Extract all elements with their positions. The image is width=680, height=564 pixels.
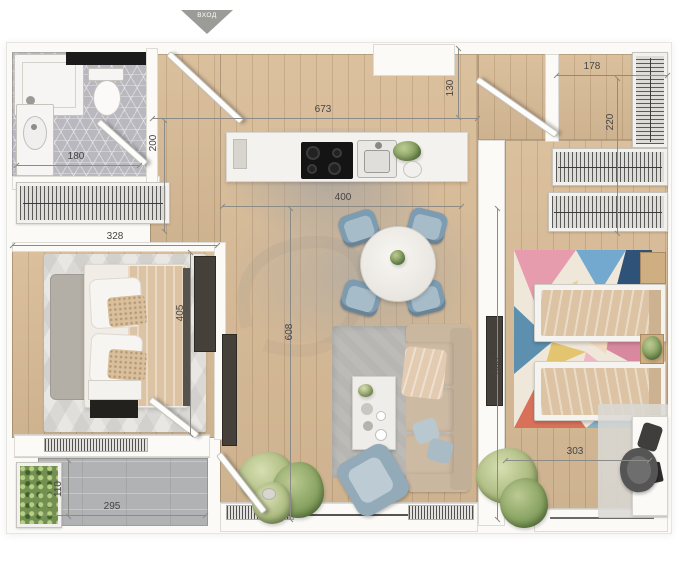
washbasin-sink [23, 116, 47, 150]
bathroom-mirror [66, 52, 146, 65]
kids-closet-1-hatch [556, 152, 664, 182]
sofa [406, 324, 474, 494]
dim-label-328: 328 [96, 231, 134, 243]
kids-floor-plant [500, 478, 548, 528]
armchair-seat [346, 455, 396, 506]
kids-bed-1-pillow [649, 290, 661, 336]
cup [376, 411, 386, 421]
dim-label-110: 110 [53, 474, 65, 504]
duct-niche [373, 44, 455, 76]
cup [363, 421, 373, 431]
dim-label-130: 130 [445, 73, 457, 103]
sink-faucet [375, 142, 382, 149]
hanger-rail [650, 58, 651, 143]
nightstand-tray [88, 380, 142, 400]
living-tv-panel [222, 334, 237, 446]
dim-label-295: 295 [94, 501, 130, 513]
sink-unit [357, 140, 397, 178]
kids-nightstand-plant [642, 336, 662, 360]
floor-plan: ВХОД [0, 0, 680, 564]
burner [306, 146, 320, 160]
kids-closet-1 [552, 148, 668, 186]
dim-line-180 [16, 165, 140, 166]
dim-line-178 [556, 75, 668, 76]
dim-label-608-left: 608 [284, 317, 296, 347]
dim-line-405 [190, 252, 191, 435]
bed-cushion [107, 349, 147, 382]
dim-line-130 [458, 48, 459, 118]
dim-label-220: 220 [605, 106, 617, 138]
burner [328, 162, 341, 175]
closet-tall [632, 52, 668, 148]
hall-wardrobe-hatch [20, 186, 166, 220]
dim-label-673: 673 [303, 104, 343, 116]
dim-label-405: 405 [175, 298, 187, 328]
cup [361, 403, 373, 415]
sink-bowl [364, 150, 390, 173]
bed-cushion [107, 294, 147, 327]
kids-closet-2-hatch [552, 196, 664, 228]
cup [375, 429, 387, 441]
dim-label-180: 180 [60, 151, 92, 163]
dim-label-608-right: 608 [491, 351, 503, 381]
bedroom-wardrobe [194, 256, 216, 352]
coffee-table-plant [358, 384, 373, 397]
dim-label-200: 200 [148, 128, 160, 158]
hall-wardrobe [16, 182, 170, 224]
dim-label-303: 303 [556, 446, 594, 458]
bed-headboard [50, 274, 88, 400]
dim-label-178: 178 [574, 61, 610, 73]
kitchen-bowl [403, 161, 422, 178]
cutting-board [233, 139, 247, 169]
dim-line-110 [68, 460, 69, 517]
dim-line-608-left [290, 208, 291, 520]
kitchen-plant [393, 141, 421, 161]
kids-bed-1-duvet [541, 290, 653, 336]
hanger-rail [558, 167, 662, 168]
dim-line-303 [505, 460, 650, 461]
burner [307, 164, 317, 174]
dim-line-400 [222, 206, 462, 207]
washbasin-faucet [31, 124, 37, 130]
dim-line-673 [152, 118, 478, 119]
table-centerpiece [390, 250, 405, 265]
dim-line-220 [617, 78, 618, 234]
dim-line-328 [12, 245, 218, 246]
closet-tall-hatch [636, 56, 664, 144]
kids-nightstand-top [640, 252, 666, 284]
plant-pot [262, 488, 276, 500]
dim-line-295 [44, 515, 206, 516]
hanger-rail [554, 212, 662, 213]
burner [332, 148, 342, 158]
bedroom-radiator [44, 438, 148, 452]
nightstand [90, 400, 138, 418]
cooktop [301, 142, 353, 179]
kitchen-counter [226, 132, 468, 182]
entrance-marker-label: ВХОД [181, 12, 233, 19]
living-radiator-right [408, 505, 474, 520]
sofa-throw [401, 346, 448, 400]
kids-closet-2 [548, 192, 668, 232]
toilet-bowl [93, 80, 121, 116]
hanger-rail [23, 203, 163, 204]
coffee-table [352, 376, 396, 450]
dim-line-200 [164, 120, 165, 232]
dim-label-400: 400 [324, 192, 362, 204]
